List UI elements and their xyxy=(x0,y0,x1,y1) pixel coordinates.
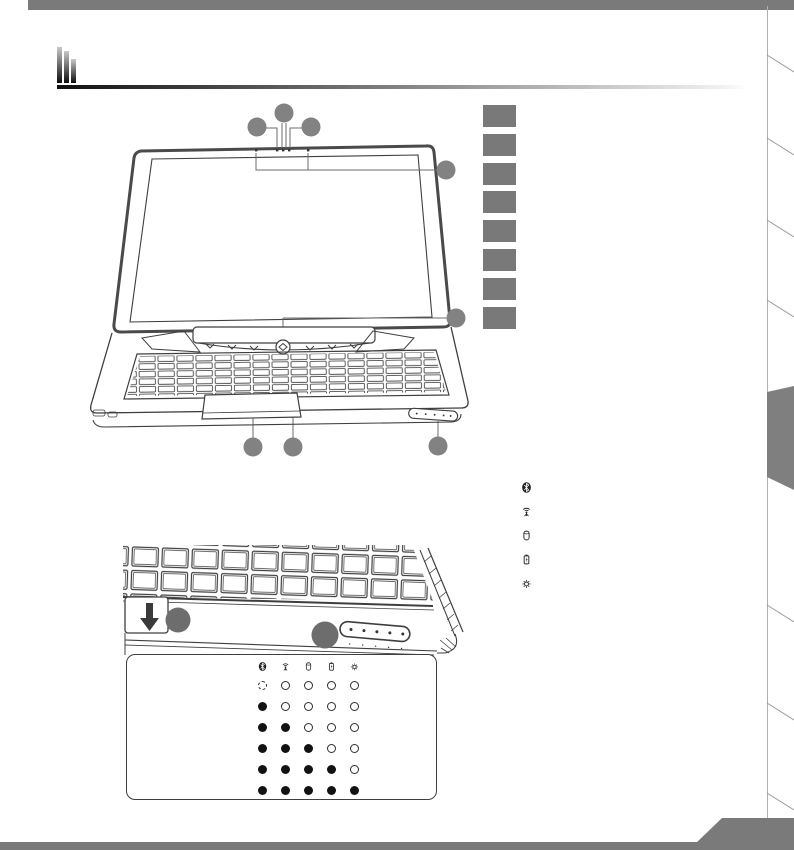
hard-disk-icon xyxy=(520,529,533,542)
led-off xyxy=(350,744,359,753)
led-cell xyxy=(251,702,274,711)
speaker-bar xyxy=(193,327,375,354)
led-header-bluetooth xyxy=(251,661,274,672)
bluetooth-icon xyxy=(257,661,268,672)
right-edge-section-tab xyxy=(767,384,794,492)
label-box-3 xyxy=(483,163,516,185)
wireless-lan-icon xyxy=(520,505,533,518)
battery-charging-icon xyxy=(326,661,337,672)
led-table-row-5 xyxy=(251,759,369,780)
led-cell xyxy=(274,723,297,732)
legend-item-wireless-lan xyxy=(519,505,533,518)
led-on xyxy=(327,786,336,795)
led-cell xyxy=(297,786,320,795)
logo-bar xyxy=(64,51,69,83)
led-status-grid xyxy=(251,657,369,801)
led-on xyxy=(258,786,267,795)
led-cell xyxy=(297,744,320,753)
label-box-5 xyxy=(483,220,516,242)
label-box-4 xyxy=(483,191,516,213)
led-table-row-3 xyxy=(251,717,369,738)
callout-circle-arrow xyxy=(166,608,191,633)
brand-logo-bars xyxy=(57,47,79,83)
led-indicator-strip-closeup xyxy=(339,621,411,650)
status-icon-legend xyxy=(519,481,533,590)
led-off xyxy=(350,723,359,732)
battery-charging-icon xyxy=(520,553,533,566)
led-table-row-1 xyxy=(251,675,369,696)
led-off xyxy=(327,744,336,753)
led-off xyxy=(327,723,336,732)
led-cell xyxy=(343,786,366,795)
led-cell xyxy=(320,723,343,732)
callout-circle-1 xyxy=(275,104,294,123)
legend-item-bluetooth xyxy=(519,481,533,494)
led-off xyxy=(304,723,313,732)
legend-item-hard-disk xyxy=(519,529,533,542)
led-status-table-panel xyxy=(126,654,437,800)
led-cell xyxy=(251,723,274,732)
led-cell xyxy=(297,681,320,690)
led-cell xyxy=(320,786,343,795)
bottom-gray-bar xyxy=(0,842,794,850)
led-table-row-4 xyxy=(251,738,369,759)
led-table-row-6 xyxy=(251,780,369,801)
legend-item-brightness xyxy=(519,577,533,590)
header-divider-rule xyxy=(57,85,747,89)
hard-disk-icon xyxy=(303,661,314,672)
led-header-brightness xyxy=(343,661,366,672)
led-off xyxy=(327,681,336,690)
callout-circle-6 xyxy=(244,438,263,457)
led-on xyxy=(281,786,290,795)
legend-item-battery-charging xyxy=(519,553,533,566)
led-header-hard-disk xyxy=(297,661,320,672)
keyboard xyxy=(124,350,449,399)
led-cell xyxy=(320,765,343,774)
led-cell xyxy=(320,702,343,711)
led-cell xyxy=(274,681,297,690)
callout-circle-2 xyxy=(248,118,267,137)
led-on xyxy=(258,765,267,774)
led-blink xyxy=(258,681,267,690)
callout-circle-5 xyxy=(447,309,466,328)
led-header-battery-charging xyxy=(320,661,343,672)
led-cell xyxy=(274,702,297,711)
led-table-row-2 xyxy=(251,696,369,717)
led-off xyxy=(327,702,336,711)
bottom-right-corner-tab xyxy=(690,816,794,844)
callout-circle-4 xyxy=(437,161,456,180)
wireless-lan-icon xyxy=(280,661,291,672)
led-table-header xyxy=(251,657,369,675)
label-box-1 xyxy=(483,105,516,127)
led-cell xyxy=(343,702,366,711)
led-indicator-strip xyxy=(408,408,458,421)
led-on xyxy=(350,786,359,795)
led-cell xyxy=(297,723,320,732)
led-cell xyxy=(320,681,343,690)
led-on xyxy=(281,744,290,753)
bluetooth-icon xyxy=(520,481,533,494)
top-gray-bar xyxy=(28,0,794,10)
label-box-6 xyxy=(483,249,516,271)
led-cell xyxy=(320,744,343,753)
front-edge-closeup-diagram xyxy=(70,540,480,662)
led-cell xyxy=(251,786,274,795)
callout-circle-3 xyxy=(302,118,321,137)
led-cell xyxy=(343,723,366,732)
brightness-icon xyxy=(520,577,533,590)
led-cell xyxy=(251,681,274,690)
led-on xyxy=(258,723,267,732)
label-box-7 xyxy=(483,278,516,300)
brightness-icon xyxy=(349,661,360,672)
led-on xyxy=(281,723,290,732)
led-on xyxy=(304,786,313,795)
led-on xyxy=(258,702,267,711)
led-cell xyxy=(343,744,366,753)
led-on xyxy=(304,765,313,774)
callout-circle-7 xyxy=(284,438,303,457)
label-box-8 xyxy=(483,307,516,329)
led-off xyxy=(304,681,313,690)
led-cell xyxy=(274,744,297,753)
led-cell xyxy=(251,765,274,774)
led-off xyxy=(350,765,359,774)
logo-bar xyxy=(57,47,62,83)
label-box-2 xyxy=(483,134,516,156)
laptop-top-view-diagram xyxy=(60,95,480,470)
led-on xyxy=(304,744,313,753)
led-off xyxy=(350,681,359,690)
led-cell xyxy=(274,765,297,774)
callout-label-boxes xyxy=(483,105,517,331)
manual-page xyxy=(0,0,794,850)
led-cell xyxy=(251,744,274,753)
logo-bar xyxy=(71,59,76,83)
callout-circle-led-strip xyxy=(312,622,339,649)
keyboard-closeup xyxy=(123,545,434,610)
led-off xyxy=(304,702,313,711)
touchpad-corner xyxy=(125,597,168,633)
touchpad xyxy=(202,393,301,419)
callout-circle-8 xyxy=(429,437,448,456)
led-cell xyxy=(343,681,366,690)
led-on xyxy=(327,765,336,774)
led-cell xyxy=(297,765,320,774)
led-on xyxy=(258,744,267,753)
led-off xyxy=(281,702,290,711)
led-cell xyxy=(274,786,297,795)
led-cell xyxy=(343,765,366,774)
led-header-wireless-lan xyxy=(274,661,297,672)
led-cell xyxy=(297,702,320,711)
display-screen xyxy=(114,146,450,332)
led-off xyxy=(281,681,290,690)
led-off xyxy=(350,702,359,711)
led-on xyxy=(281,765,290,774)
